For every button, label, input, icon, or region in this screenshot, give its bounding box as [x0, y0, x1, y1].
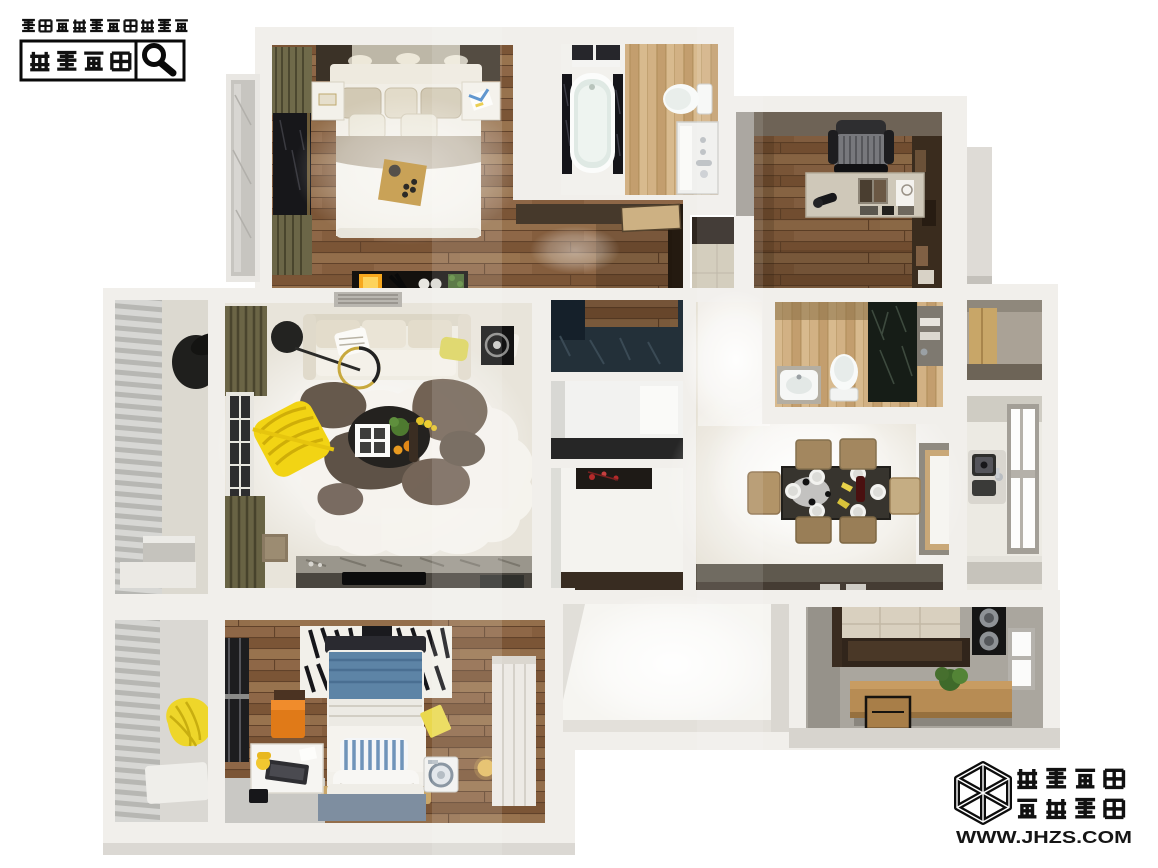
svg-text:WWW.JHZS.COM: WWW.JHZS.COM: [956, 827, 1132, 847]
